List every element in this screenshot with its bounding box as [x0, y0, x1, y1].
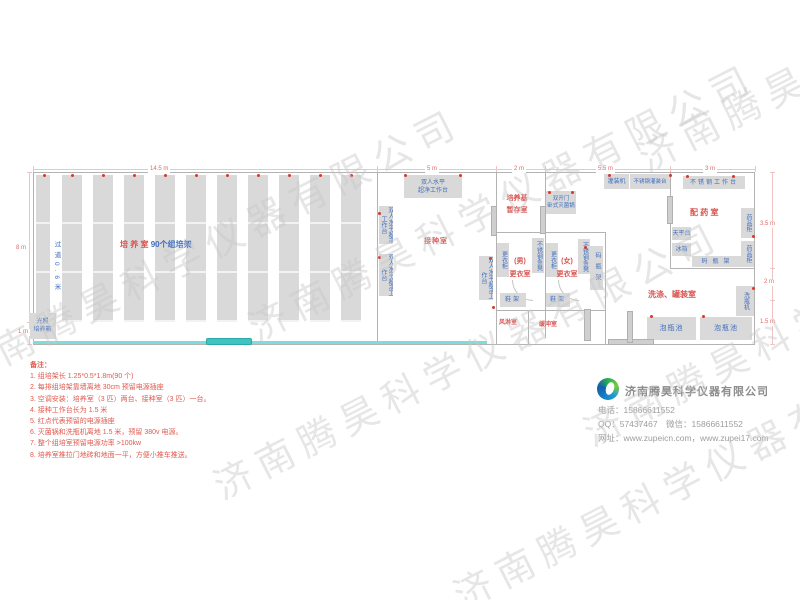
equipment-bottle-washer: 洗瓶机 — [736, 286, 754, 316]
power-dot — [102, 174, 105, 177]
buffer-room-label: 缓冲室 — [539, 319, 557, 328]
rack-column — [248, 175, 268, 322]
equipment-soak-pool-1: 泡瓶池 — [647, 317, 696, 340]
culture-room-label: 培 养 室 90个组培架 — [120, 239, 192, 250]
storage-room-line2: 暂存室 — [499, 205, 535, 217]
dim-tick — [670, 166, 671, 172]
power-dot — [404, 174, 407, 177]
dim-tick — [755, 166, 756, 172]
equipment-bottle-rack-changing: 码瓶架 — [590, 246, 603, 290]
power-dot — [489, 257, 492, 260]
storage-room-label: 培养基 暂存室 — [499, 193, 535, 217]
watermark-text: 济南腾昊科学仪器有限公司 — [443, 315, 800, 600]
company-phone: 电话：15866611552 — [598, 403, 675, 417]
sterilizer-line2: 卧式灭菌锅 — [547, 203, 575, 210]
rack-column — [341, 175, 361, 322]
clean-bench-line1: 双人水平 — [418, 179, 448, 187]
power-dot — [492, 306, 495, 309]
dim-tick — [770, 300, 775, 301]
equipment-incubator: 光照 培养箱 — [29, 313, 56, 339]
company-logo-swoosh-icon — [604, 381, 616, 396]
power-dot — [752, 287, 755, 290]
power-dot — [732, 175, 735, 178]
equipment-soak-pool-2: 泡瓶池 — [700, 317, 752, 340]
dim-tick — [770, 268, 775, 269]
power-dot — [571, 191, 574, 194]
note-line-2: 2. 每排组培架靠墙离地 30cm 预留电源插座 — [30, 382, 310, 393]
company-logo-icon — [597, 378, 619, 400]
wall-right — [754, 172, 755, 345]
door-storage — [491, 206, 497, 236]
company-qq-wechat: QQ：57437467 微信：15866611552 — [598, 417, 743, 431]
rack-column — [36, 175, 50, 322]
storage-room-line1: 培养基 — [499, 193, 535, 205]
equipment-clean-bench-top: 双人水平 超净工作台 — [404, 175, 462, 198]
sterilizer-line1: 双开门 — [547, 196, 575, 203]
glass-front-line — [33, 341, 487, 344]
power-dot — [43, 174, 46, 177]
dim-tick — [545, 166, 546, 172]
dimension-label-front-height: 1 m — [16, 329, 30, 336]
dimension-label-dispensing-width: 3 m — [703, 166, 717, 173]
note-line-8: 8. 培养室推拉门地砖和地面一平，方便小推车推送。 — [30, 450, 310, 461]
notes-title: 备注： — [30, 360, 310, 371]
door-dispensing — [667, 196, 673, 224]
incubator-line1: 光照 — [33, 318, 51, 326]
rack-column — [217, 175, 237, 322]
dim-tick — [770, 172, 775, 173]
equipment-shoe-rack-mens: 鞋架 — [500, 293, 526, 307]
dim-tick — [496, 166, 497, 172]
power-dot — [702, 315, 705, 318]
air-shower-room-label: 风淋室 — [499, 317, 517, 326]
equipment-fridge: 冰箱 — [672, 243, 691, 256]
womens-line1: (女) — [554, 255, 580, 268]
power-dot — [71, 174, 74, 177]
power-dot — [378, 212, 381, 215]
equipment-sterilizer: 双开门 卧式灭菌锅 — [546, 191, 576, 214]
door-storage-right — [540, 206, 546, 234]
floorplan-drawing: 济南腾昊科学仪器有限公司 济南腾昊科学仪器有限公司 济南腾昊科学仪器有限公司 济… — [0, 0, 800, 600]
dim-tick — [27, 172, 32, 173]
note-line-3: 3. 空调安装：培养室（3 匹）两台、接种室（3 匹）一台。 — [30, 394, 310, 405]
equipment-clean-bench-left1: 双人水平超净工作台 — [379, 206, 393, 244]
wall-airshower-buffer — [528, 310, 529, 344]
door-buffer-east — [627, 311, 633, 343]
power-dot — [164, 174, 167, 177]
dimension-label-main-height: 8 m — [14, 245, 28, 252]
rack-column — [310, 175, 330, 322]
inoculation-room-label: 接种室 — [424, 236, 448, 246]
womens-line2: 更衣室 — [554, 268, 580, 281]
power-dot — [752, 235, 755, 238]
wall-dispensing-bottom — [670, 268, 755, 269]
aisle-label: 过道0.6米 — [49, 228, 61, 306]
note-line-1: 1. 组培架长 1.25*0.5*1.8m(90 个) — [30, 371, 310, 382]
power-dot — [257, 174, 260, 177]
company-name: 济南腾昊科学仪器有限公司 — [625, 383, 769, 399]
power-dot — [378, 256, 381, 259]
power-dot — [288, 174, 291, 177]
wall-changing-top — [496, 232, 606, 233]
dim-line-top — [33, 169, 755, 170]
wall-top — [33, 172, 755, 173]
washing-room-label: 洗涤、罐装室 — [648, 289, 696, 300]
equipment-ss-bench-mens: 不锈钢条凳 — [532, 238, 544, 273]
sliding-door — [206, 338, 252, 345]
equipment-worktable: 不锈钢工作台 — [683, 176, 745, 189]
rack-column — [93, 175, 113, 322]
power-dot — [584, 246, 587, 249]
power-dot — [319, 174, 322, 177]
mens-line1: (男) — [507, 255, 533, 268]
company-website[interactable]: 网址：www.zupeicn.com，www.zupei17.com — [598, 431, 769, 445]
dimension-label-wash-height: 2 m — [762, 279, 776, 286]
dimension-label-dispensing-height: 3.5 m — [758, 221, 777, 228]
equipment-shoe-rack-womens: 鞋架 — [546, 293, 570, 307]
note-line-5: 5. 红点代表预留的电源插座 — [30, 416, 310, 427]
culture-room-racks-label: 90个组培架 — [151, 240, 192, 249]
power-dot — [133, 174, 136, 177]
power-dot — [608, 174, 611, 177]
womens-changing-room-label: (女) 更衣室 — [554, 255, 580, 281]
dim-tick — [770, 344, 775, 345]
power-dot — [226, 174, 229, 177]
power-dot — [350, 174, 353, 177]
notes-block: 备注： 1. 组培架长 1.25*0.5*1.8m(90 个) 2. 每排组培架… — [30, 360, 310, 461]
dim-tick — [33, 166, 34, 172]
mens-changing-room-label: (男) 更衣室 — [507, 255, 533, 281]
power-dot — [459, 174, 462, 177]
dimension-label-storage-width: 2 m — [512, 166, 526, 173]
incubator-line2: 培养箱 — [33, 326, 51, 334]
power-dot — [669, 174, 672, 177]
equipment-clean-bench-right: 双人水平超净工作台 — [479, 256, 493, 300]
power-dot — [686, 175, 689, 178]
equipment-bottle-rack-dispensing: 码瓶架 — [692, 256, 744, 267]
power-dot — [548, 191, 551, 194]
equipment-clean-bench-left2: 双人水平超净工作台 — [379, 254, 393, 296]
equipment-balance-table: 天平台 — [672, 227, 691, 240]
door-buffer-right — [584, 309, 591, 341]
dimension-label-inoculation-width: 5 m — [425, 166, 439, 173]
dimension-label-pool-height: 1.5 m — [758, 319, 777, 326]
rack-column — [62, 175, 82, 322]
wall-changing-right — [605, 232, 606, 344]
clean-bench-line2: 超净工作台 — [418, 187, 448, 195]
note-line-4: 4. 接种工作台长为 1.5 米 — [30, 405, 310, 416]
mens-line2: 更衣室 — [507, 268, 533, 281]
dim-tick — [27, 344, 32, 345]
note-line-7: 7. 整个组培室预留电源功率 >100kw — [30, 438, 310, 449]
dimension-label-mid-width: 5.5 m — [596, 166, 615, 173]
power-dot — [650, 315, 653, 318]
dispensing-room-label: 配 药 室 — [690, 207, 718, 218]
culture-room-name: 培 养 室 — [120, 240, 148, 249]
dimension-label-total-width: 14.5 m — [148, 166, 170, 173]
note-line-6: 6. 灭菌锅和洗瓶机离地 1.5 米，预留 380v 电源。 — [30, 427, 310, 438]
dim-tick — [377, 166, 378, 172]
rack-column — [279, 175, 299, 322]
equipment-medicine-cabinet-1: 药品柜 — [741, 208, 754, 238]
equipment-filling-table: 不锈钢灌装台 — [630, 174, 670, 189]
watermark-text: 济南腾昊科学仪器有限公司 — [628, 0, 800, 182]
power-dot — [195, 174, 198, 177]
